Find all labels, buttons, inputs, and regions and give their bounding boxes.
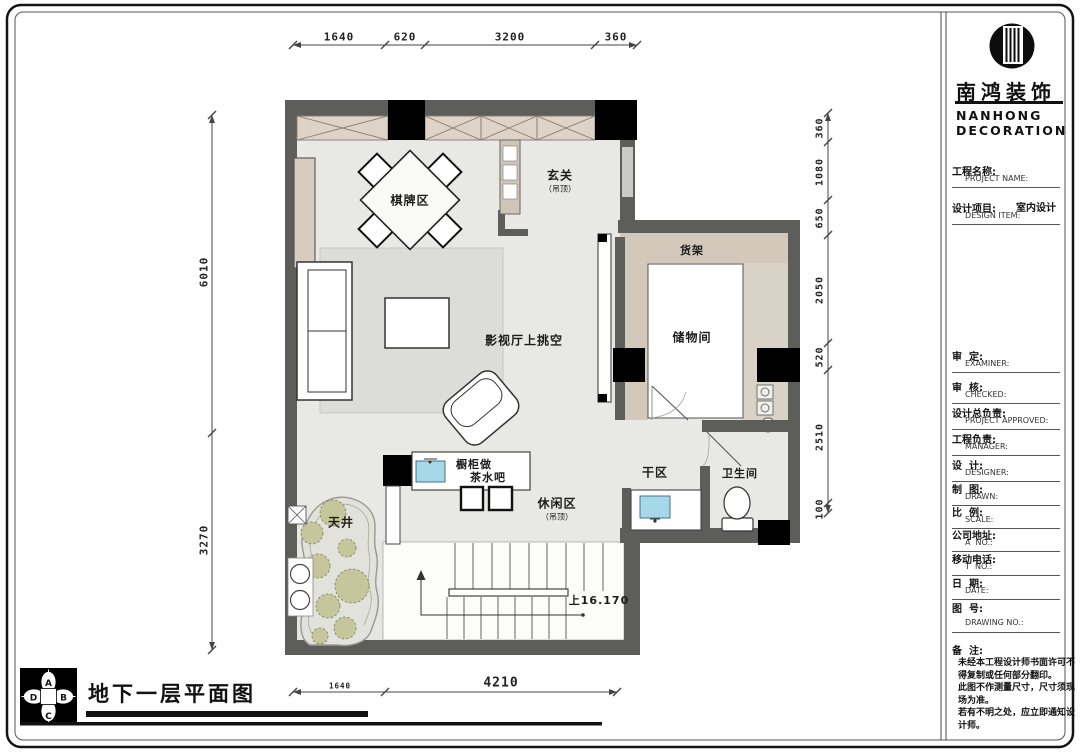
field-checked: 审 核: CHECKED:	[952, 379, 1062, 405]
field-label-en: SCALE:	[965, 515, 993, 524]
dim-right-5: 2510	[815, 423, 826, 451]
label-shelf: 货架	[680, 242, 704, 258]
label-courtyard: 天井	[328, 514, 354, 531]
dim-right-0: 360	[815, 117, 826, 138]
company-name-cn: 南鸿装饰	[950, 76, 1062, 105]
remark-line: 此图不作测量尺寸，尺寸须现	[958, 682, 1060, 695]
side-cabinet	[294, 158, 315, 268]
field-underline	[952, 455, 1060, 456]
dim-top-0: 1640	[324, 31, 355, 44]
remark-line: 得复制或任何部分翻印。	[958, 670, 1060, 683]
remark-label: 备 注:	[952, 642, 1060, 657]
field-label-en: EXAMINER:	[965, 359, 1009, 368]
field-label-en: A NO.:	[965, 538, 993, 547]
company-name-en-line1: NANHONG	[956, 108, 1067, 123]
dim-right-2: 650	[815, 207, 826, 228]
bar-sink	[416, 461, 445, 482]
field-value: 室内设计	[1016, 199, 1056, 214]
screen-panel	[598, 234, 611, 402]
stair-handrail	[449, 589, 568, 596]
drawing-sheet: A B C D 棋牌区 玄关 （吊顶） 货架 储物间 影视厅上挑空 干区 卫生间…	[0, 0, 1080, 753]
label-game-area: 棋牌区	[390, 192, 429, 209]
label-storage-room: 储物间	[672, 329, 711, 346]
dim-bottom-0: 1640	[329, 682, 351, 691]
field-label-cn: 图 号:	[952, 600, 983, 615]
plan-title: 地下一层平面图	[88, 678, 256, 708]
coffee-table	[385, 298, 449, 348]
field-project-name: 工程名称: PROJECT NAME:	[952, 163, 1062, 189]
label-entry-ceiling: （吊顶）	[544, 184, 576, 195]
compass-letter-b: B	[60, 694, 67, 704]
top-wall-cabinets	[297, 116, 595, 140]
label-stairs-up: 上16.170	[569, 592, 629, 608]
field-label-en: CHECKED:	[965, 390, 1006, 399]
field-project-approved: 设计总负责: PROJECT APPROVED:	[952, 405, 1062, 431]
dim-right-1: 1080	[815, 158, 826, 186]
remark-line: 若有不明之处，应立即通知设	[958, 707, 1060, 720]
field-label-en: T NO.:	[965, 562, 992, 571]
field-label-en: PROJECT NAME:	[965, 174, 1028, 183]
plan-title-underline	[20, 711, 602, 726]
field-underline	[952, 372, 1060, 373]
floor-plan-drawing: A B C D	[0, 0, 1080, 753]
field-label-en: DESIGN ITEM:	[965, 211, 1020, 220]
field-label-en: DATE:	[965, 586, 989, 595]
company-name-en-line2: DECORATION	[956, 123, 1067, 138]
compass-letter-c: C	[45, 712, 52, 722]
field-label-en: MANAGER:	[965, 442, 1008, 451]
dim-bottom-1: 4210	[483, 676, 518, 691]
dim-right-3: 2050	[815, 276, 826, 304]
label-theater-void: 影视厅上挑空	[485, 332, 563, 349]
remark-line: 未经本工程设计师书面许可不	[958, 657, 1060, 670]
field-label-en: DESIGNER:	[965, 468, 1009, 477]
field-label-en: DRAWN:	[965, 492, 998, 501]
label-leisure-ceiling: （吊顶）	[541, 512, 573, 523]
entry-closet	[500, 140, 520, 214]
label-entry: 玄关	[547, 167, 573, 184]
field-phone: 移动电话: T NO.:	[952, 551, 1062, 577]
company-name-en: NANHONG DECORATION	[956, 108, 1067, 138]
field-underline	[952, 429, 1060, 430]
stool	[461, 487, 483, 510]
remark-line: 场为准。	[958, 695, 1060, 708]
dim-top-1: 620	[394, 31, 417, 44]
dim-top-3: 360	[605, 31, 628, 44]
field-date: 日 期: DATE:	[952, 575, 1062, 601]
field-address: 公司地址: A NO.:	[952, 527, 1062, 553]
dim-top-2: 3200	[495, 31, 526, 44]
dim-right-6: 100	[815, 498, 826, 519]
field-drawing-no: 图 号: DRAWING NO.:	[952, 600, 1062, 626]
compass-letter-a: A	[45, 679, 52, 689]
field-underline	[952, 403, 1060, 404]
field-label-en: PROJECT APPROVED:	[965, 416, 1048, 425]
vanity-sink	[631, 490, 701, 530]
label-tea-bar: 茶水吧	[470, 469, 506, 485]
remark-line: 计师。	[958, 720, 1060, 733]
field-manager: 工程负责: MANAGER:	[952, 431, 1062, 457]
label-dry-area: 干区	[642, 464, 668, 481]
stool	[489, 487, 512, 510]
sofa	[297, 262, 352, 400]
dim-left-0: 6010	[198, 257, 211, 288]
field-designer: 设 计: DESIGNER:	[952, 457, 1062, 483]
field-examiner: 审 定: EXAMINER:	[952, 348, 1062, 374]
label-bathroom: 卫生间	[722, 465, 758, 481]
field-design-item: 设计项目: DESIGN ITEM: 室内设计	[952, 200, 1062, 226]
entry-wall-opening	[622, 147, 633, 197]
field-underline	[952, 224, 1060, 225]
dim-right-4: 520	[815, 346, 826, 367]
field-underline	[952, 632, 1060, 633]
label-leisure-area: 休闲区	[537, 495, 576, 512]
field-label-en: DRAWING NO.:	[965, 618, 1024, 627]
dim-left-1: 3270	[198, 525, 211, 556]
compass-letter-d: D	[30, 694, 37, 704]
remark-block: 备 注: 未经本工程设计师书面许可不 得复制或任何部分翻印。 此图不作测量尺寸，…	[952, 642, 1060, 732]
field-underline	[952, 187, 1060, 188]
title-block: 南鸿装饰 NANHONG DECORATION 工程名称: PROJECT NA…	[950, 0, 1062, 753]
compass-rose: A B C D	[20, 668, 77, 725]
